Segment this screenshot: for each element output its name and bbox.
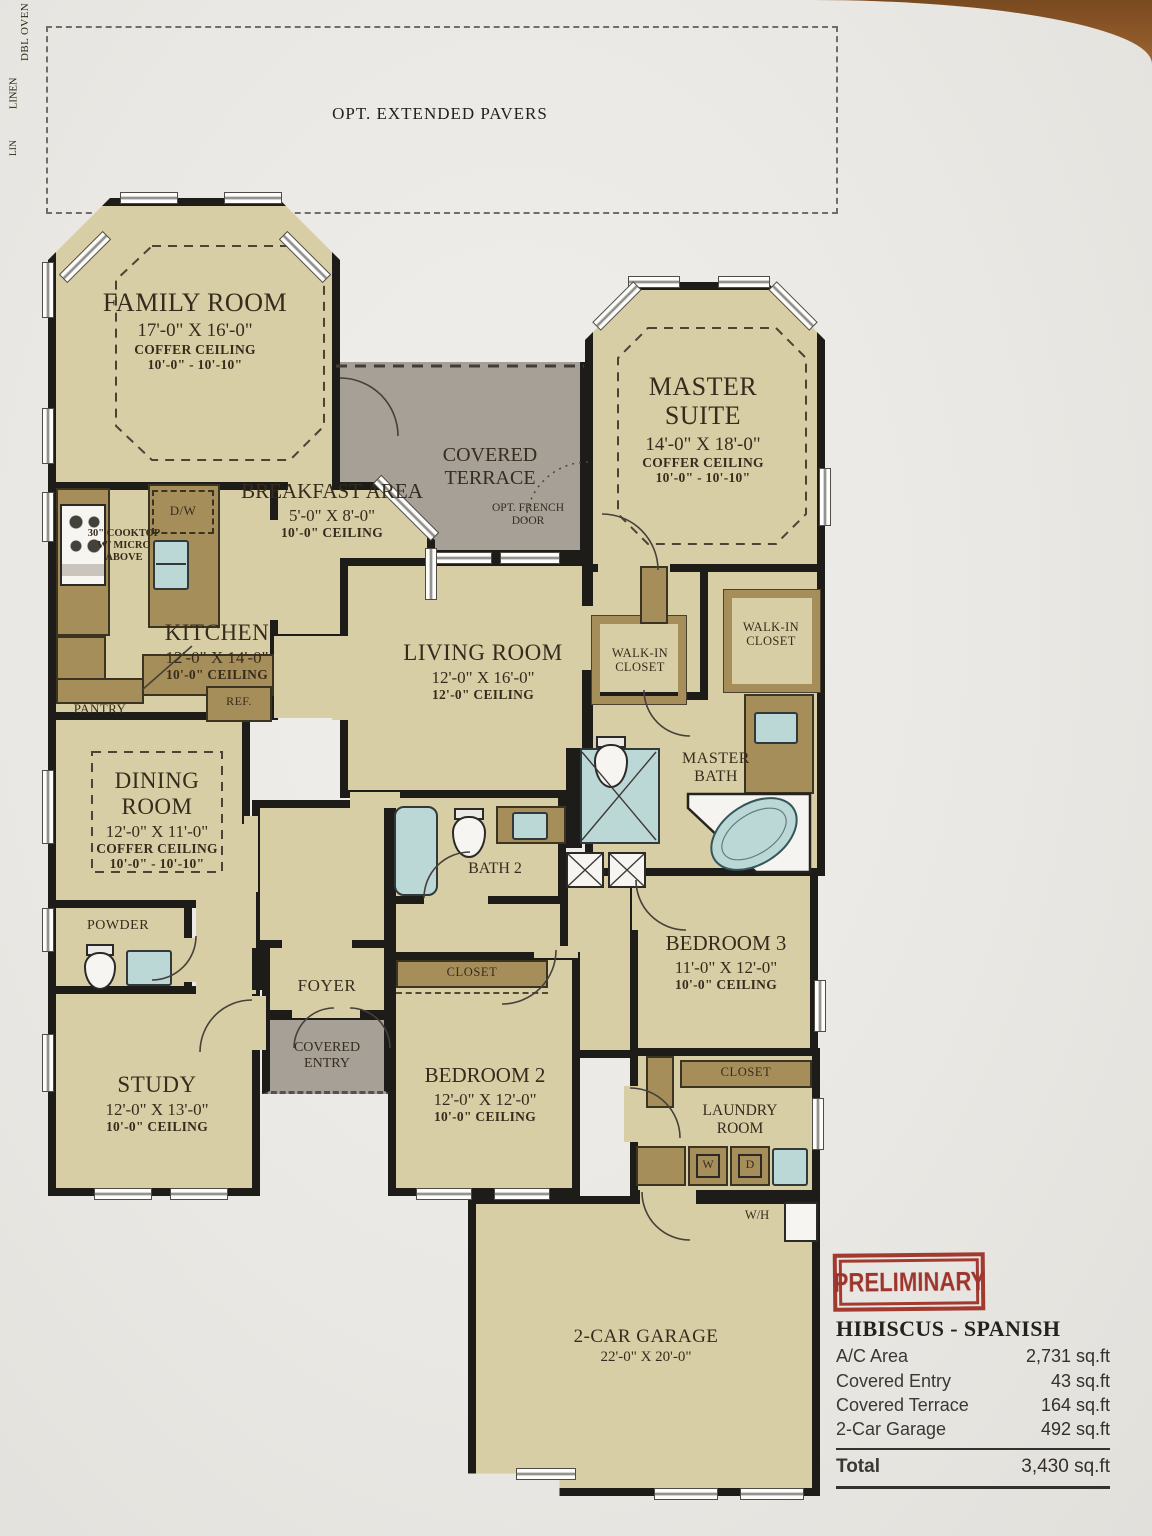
powder-label: POWDER: [70, 918, 166, 934]
area-row-label: A/C Area: [836, 1346, 908, 1367]
total-row: Total 3,430 sq.ft: [836, 1456, 1110, 1478]
opening: [350, 792, 400, 808]
foyer-label: FOYER: [282, 976, 372, 995]
master-suite-ceiling-type: COFFER CEILING: [608, 455, 798, 470]
hall-closet-text: CLOSET: [680, 1065, 812, 1079]
dryer-label: D: [730, 1158, 770, 1172]
dryer-text: D: [730, 1158, 770, 1172]
master-suite-dims: 14'-0" X 18'-0": [608, 434, 798, 455]
wic-right-name: WALK-IN CLOSET: [726, 620, 816, 648]
window: [42, 492, 54, 542]
area-row-value: 43 sq.ft: [1051, 1371, 1110, 1392]
kitchen-label: KITCHEN 12'-0" X 14'-0" 10'-0" CEILING: [132, 620, 302, 682]
opening: [332, 650, 352, 720]
study-ceiling: 10'-0" CEILING: [82, 1119, 232, 1134]
bed3-ceiling: 10'-0" CEILING: [646, 977, 806, 992]
laundry-name: LAUNDRY ROOM: [688, 1102, 792, 1137]
opening: [252, 996, 266, 1050]
garage-dims: 22'-0" X 20'-0": [558, 1349, 734, 1366]
window: [494, 1188, 550, 1200]
cooktop-label: 30" COOKTOP W/ MICRO ABOVE: [84, 528, 164, 564]
total-value: 3,430 sq.ft: [1021, 1456, 1110, 1478]
family-room-label: FAMILY ROOM 17'-0" X 16'-0" COFFER CEILI…: [100, 288, 290, 372]
powder-sink: [126, 950, 172, 986]
breakfast-label: BREAKFAST AREA 5'-0" X 8'-0" 10'-0" CEIL…: [232, 480, 432, 540]
window: [416, 1188, 472, 1200]
master-suite-label: MASTER SUITE 14'-0" X 18'-0" COFFER CEIL…: [608, 372, 798, 486]
foyer-name: FOYER: [282, 976, 372, 995]
total-label: Total: [836, 1456, 880, 1478]
opening: [640, 1190, 696, 1206]
family-room-name: FAMILY ROOM: [100, 288, 290, 317]
family-room-dims: 17'-0" X 16'-0": [100, 320, 290, 341]
breakfast-name: BREAKFAST AREA: [232, 480, 432, 504]
bed2-name: BEDROOM 2: [406, 1064, 564, 1088]
area-row-value: 164 sq.ft: [1041, 1395, 1110, 1416]
water-heater-text: W/H: [734, 1208, 780, 1222]
room-hall-center: [252, 800, 392, 948]
kitchen-ceiling: 10'-0" CEILING: [132, 667, 302, 682]
master-suite-ceiling-height: 10'-0" - 10'-10": [608, 470, 798, 485]
dishwasher-label: D/W: [152, 504, 214, 519]
terrace-name: COVERED TERRACE: [420, 444, 560, 489]
bath2-tub: [394, 806, 438, 896]
sliding-door: [500, 552, 560, 564]
window: [425, 548, 437, 600]
water-heater: [784, 1202, 818, 1242]
bed2-closet-label: CLOSET: [396, 965, 548, 979]
plan-name: HIBISCUS - SPANISH: [836, 1316, 1112, 1342]
area-row: A/C Area 2,731 sq.ft: [836, 1346, 1110, 1367]
window: [94, 1188, 152, 1200]
garage-label: 2-CAR GARAGE 22'-0" X 20'-0": [558, 1326, 734, 1366]
french-door-label: OPT. FRENCH DOOR: [490, 502, 566, 528]
wic-left-label: WALK-IN CLOSET: [600, 646, 680, 674]
bed3-lin-cabinet: [646, 1056, 674, 1108]
living-room-ceiling: 12'-0" CEILING: [398, 687, 568, 702]
washer-label: W: [688, 1158, 728, 1172]
linen-label: LINEN: [0, 64, 28, 122]
opening: [282, 938, 352, 952]
opening: [244, 816, 258, 892]
laundry-counter: [636, 1146, 686, 1186]
refrigerator-label: REF.: [206, 695, 272, 709]
garage-door: [654, 1488, 718, 1500]
covered-entry-name: COVERED ENTRY: [284, 1040, 370, 1072]
family-room-ceiling-type: COFFER CEILING: [100, 342, 290, 357]
dining-room-ceiling-height: 10'-0" - 10'-10": [84, 856, 230, 871]
master-sink: [754, 712, 798, 744]
double-oven-label: DBL OVEN: [0, 0, 50, 64]
bed2-dims: 12'-0" X 12'-0": [406, 1090, 564, 1109]
window: [42, 1034, 54, 1092]
french-door-note: OPT. FRENCH DOOR: [490, 502, 566, 528]
garage-door: [516, 1468, 576, 1480]
study-label: STUDY 12'-0" X 13'-0" 10'-0" CEILING: [82, 1072, 232, 1134]
window: [812, 1098, 824, 1150]
area-row-label: 2-Car Garage: [836, 1419, 946, 1440]
total-divider: [836, 1448, 1110, 1450]
opening: [184, 938, 198, 982]
floor-plan-photo: { "site": {"pavers_label": "OPT. EXTENDE…: [0, 0, 1152, 1536]
family-room-ceiling-height: 10'-0" - 10'-10": [100, 357, 290, 372]
window: [42, 770, 54, 844]
preliminary-stamp: PRELIMINARY: [833, 1252, 986, 1312]
opening: [292, 1006, 360, 1018]
area-row-label: Covered Entry: [836, 1371, 951, 1392]
lin-label: LIN: [0, 122, 28, 174]
bath2-sink: [512, 812, 548, 840]
window: [814, 980, 826, 1032]
kitchen-dims: 12'-0" X 14'-0": [132, 648, 302, 667]
living-room-dims: 12'-0" X 16'-0": [398, 668, 568, 687]
cooktop-text: 30" COOKTOP W/ MICRO ABOVE: [84, 528, 164, 564]
window: [42, 908, 54, 952]
living-room-name: LIVING ROOM: [398, 640, 568, 666]
window: [42, 262, 54, 318]
study-name: STUDY: [82, 1072, 232, 1098]
area-row-label: Covered Terrace: [836, 1395, 969, 1416]
window: [170, 1188, 228, 1200]
master-suite-name: MASTER SUITE: [608, 372, 798, 431]
bed3-dims: 11'-0" X 12'-0": [646, 958, 806, 977]
bed3-name: BEDROOM 3: [646, 932, 806, 956]
area-row-value: 2,731 sq.ft: [1026, 1346, 1110, 1367]
pantry-label: PANTRY: [52, 702, 148, 717]
garage-door: [740, 1488, 804, 1500]
bed3-label: BEDROOM 3 11'-0" X 12'-0" 10'-0" CEILING: [646, 932, 806, 992]
linen-shelf-box: [566, 852, 604, 888]
bottom-rule: [836, 1486, 1110, 1489]
dining-room-name: DINING ROOM: [84, 768, 230, 820]
bed2-closet-text: CLOSET: [396, 965, 548, 979]
terrace-label: COVERED TERRACE: [420, 444, 560, 489]
hall-closet-label: CLOSET: [680, 1065, 812, 1079]
study-dims: 12'-0" X 13'-0": [82, 1100, 232, 1119]
closet-rod-line: [396, 992, 548, 994]
laundry-sink: [772, 1148, 808, 1186]
laundry-label: LAUNDRY ROOM: [688, 1102, 792, 1137]
window: [819, 468, 831, 526]
garage-name: 2-CAR GARAGE: [558, 1326, 734, 1347]
covered-entry-label: COVERED ENTRY: [284, 1040, 370, 1072]
linen-cabinet: [640, 566, 668, 624]
bath2-name: BATH 2: [450, 860, 540, 878]
preliminary-stamp-text: PRELIMINARY: [833, 1266, 985, 1299]
breakfast-dims: 5'-0" X 8'-0": [232, 506, 432, 525]
area-row: Covered Terrace 164 sq.ft: [836, 1395, 1110, 1416]
dining-room-ceiling-type: COFFER CEILING: [84, 841, 230, 856]
powder-name: POWDER: [70, 918, 166, 934]
sliding-door: [432, 552, 492, 564]
area-row-value: 492 sq.ft: [1041, 1419, 1110, 1440]
wall: [700, 564, 708, 700]
wall: [252, 948, 264, 990]
living-room-label: LIVING ROOM 12'-0" X 16'-0" 12'-0" CEILI…: [398, 640, 568, 702]
extended-pavers-label: OPT. EXTENDED PAVERS: [240, 104, 640, 123]
dining-room-label: DINING ROOM 12'-0" X 11'-0" COFFER CEILI…: [84, 768, 230, 872]
opening: [624, 1086, 640, 1142]
kitchen-name: KITCHEN: [132, 620, 302, 646]
opening: [424, 896, 488, 910]
window: [718, 276, 770, 288]
linen-shelf-box: [608, 852, 646, 888]
dining-room-dims: 12'-0" X 11'-0": [84, 822, 230, 841]
window: [42, 408, 54, 464]
bed2-ceiling: 10'-0" CEILING: [406, 1109, 564, 1124]
breakfast-ceiling: 10'-0" CEILING: [232, 525, 432, 540]
master-bath-label: MASTER BATH: [668, 750, 764, 786]
bath2-label: BATH 2: [450, 860, 540, 878]
opening: [577, 606, 593, 670]
window: [224, 192, 282, 204]
bed2-label: BEDROOM 2 12'-0" X 12'-0" 10'-0" CEILING: [406, 1064, 564, 1124]
water-heater-label: W/H: [734, 1208, 780, 1222]
opening: [570, 910, 594, 950]
area-row: Covered Entry 43 sq.ft: [836, 1371, 1110, 1392]
washer-text: W: [688, 1158, 728, 1172]
window: [120, 192, 178, 204]
master-bath-name: MASTER BATH: [668, 750, 764, 786]
wic-left-name: WALK-IN CLOSET: [600, 646, 680, 674]
area-row: 2-Car Garage 492 sq.ft: [836, 1419, 1110, 1440]
wic-right-label: WALK-IN CLOSET: [726, 620, 816, 648]
